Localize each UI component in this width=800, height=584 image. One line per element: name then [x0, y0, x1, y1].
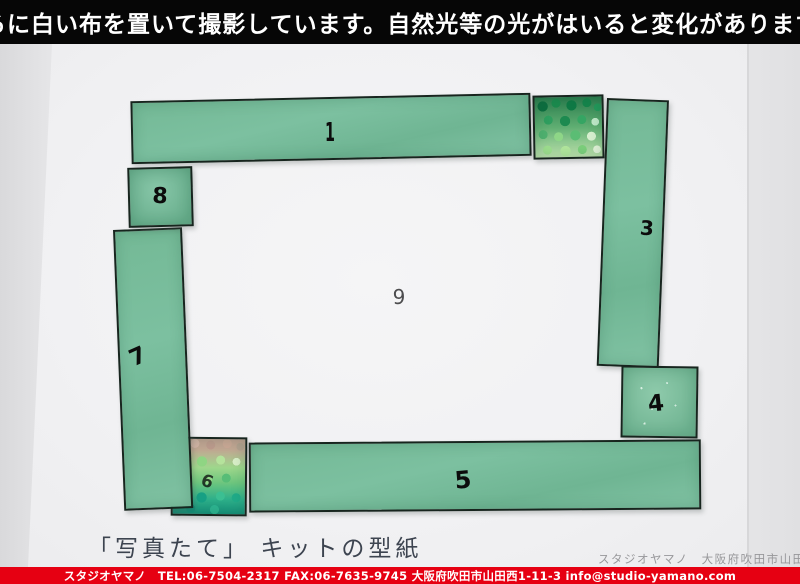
- piece-number-5: 5: [445, 462, 482, 499]
- pattern-caption: 「写真たて」 キットの型紙: [88, 529, 422, 563]
- piece-number-4: 4: [637, 385, 674, 422]
- piece-number-8: 8: [142, 178, 178, 214]
- piece-number-3: 3: [629, 210, 665, 246]
- contact-footer-bar: スタジオヤマノ TEL:06-7504-2317 FAX:06-7635-974…: [0, 567, 800, 584]
- product-photo: 1 3 4 5 6 7 8 9 「写真たて」 キットの型紙 スタジオヤマノ 大阪…: [0, 44, 800, 567]
- piece-number-1: 1: [321, 116, 340, 150]
- piece-number-9-center: 9: [382, 280, 416, 314]
- page: 後ろに白い布を置いて撮影しています。自然光等の光がはいると変化があります。 1 …: [0, 0, 800, 584]
- top-notice-text: 後ろに白い布を置いて撮影しています。自然光等の光がはいると変化があります。: [0, 5, 800, 39]
- glass-piece-nugget-corner-top-right: [532, 94, 604, 159]
- top-notice-banner: 後ろに白い布を置いて撮影しています。自然光等の光がはいると変化があります。: [0, 0, 800, 44]
- paper-right-edge: [747, 44, 749, 567]
- studio-watermark: スタジオヤマノ 大阪府吹田市山田西1-: [598, 551, 800, 567]
- contact-footer-text: スタジオヤマノ TEL:06-7504-2317 FAX:06-7635-974…: [64, 568, 736, 584]
